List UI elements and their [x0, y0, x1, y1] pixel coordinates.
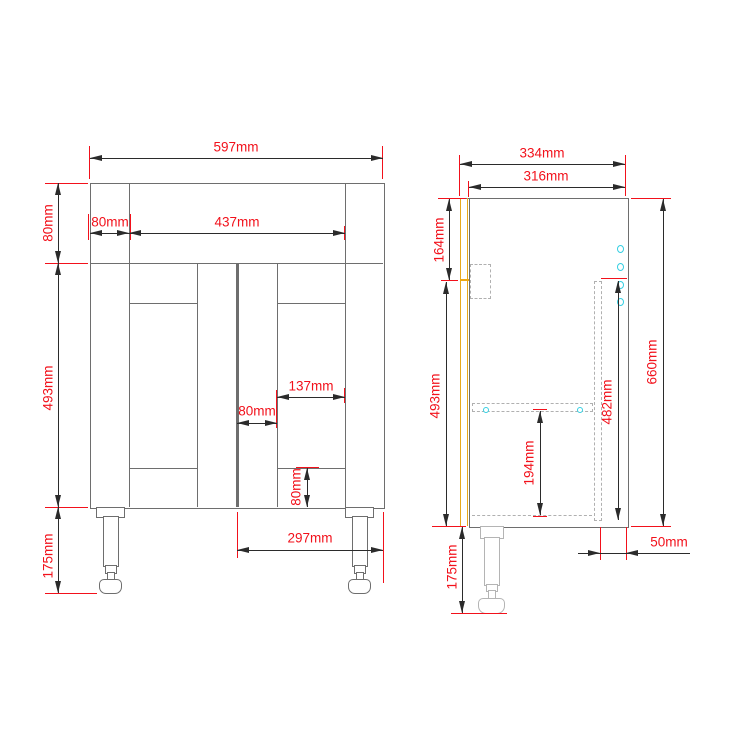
extension-line [533, 409, 547, 410]
front-door-gap-line [236, 263, 239, 507]
shelf-hidden [472, 403, 593, 412]
extension-line [533, 516, 547, 517]
dim-arrow [304, 495, 310, 507]
extension-line [89, 146, 90, 179]
shelf-peg-hole [617, 263, 624, 271]
dim-arrow [117, 230, 129, 236]
dim-arrow [613, 161, 625, 167]
dim-arrow [459, 601, 465, 613]
dim-arrow [588, 550, 600, 556]
extension-line [451, 613, 507, 614]
shelf-peg-hole [617, 245, 624, 253]
dim-arrow [129, 230, 141, 236]
dim-label-side-total-depth: 334mm [519, 146, 564, 160]
dimension-line [618, 281, 619, 520]
dim-label-side-back-offset: 50mm [650, 535, 688, 549]
dim-arrow [469, 184, 481, 190]
extension-line [600, 527, 601, 560]
front-panel-edge-line [277, 263, 278, 507]
dim-arrow [55, 507, 61, 519]
extension-line [45, 593, 97, 594]
leg-foot [348, 579, 371, 594]
dim-label-front-rail-span: 437mm [214, 215, 259, 229]
leg-foot [478, 598, 505, 614]
front-right-panel-bottom-line [277, 468, 345, 469]
dim-arrow [537, 411, 543, 423]
dim-label-side-shelf-height: 194mm [522, 440, 536, 485]
extension-line [601, 278, 627, 279]
shelf-peg [483, 407, 489, 413]
front-left-panel-top-line [129, 303, 197, 304]
dim-arrow [660, 199, 666, 211]
dim-label-side-leg-height: 175mm [445, 544, 459, 589]
dim-arrow [443, 514, 449, 526]
dim-label-front-panel-width: 137mm [288, 379, 333, 393]
dim-arrow [371, 547, 383, 553]
extension-line [438, 198, 466, 199]
extension-line [631, 526, 671, 527]
dimension-line [237, 550, 383, 551]
dim-arrow [237, 547, 249, 553]
shelf-peg [577, 407, 583, 413]
extension-line [130, 214, 131, 240]
dim-arrow [55, 495, 61, 507]
extension-line [625, 155, 626, 196]
dim-arrow [55, 251, 61, 263]
extension-line [383, 512, 384, 583]
dim-arrow [55, 183, 61, 195]
base-panel-hidden-line [472, 515, 592, 516]
dim-arrow [615, 281, 621, 293]
dim-arrow [90, 155, 102, 161]
dimension-line [460, 164, 625, 165]
dimension-line [446, 282, 447, 526]
side-carcass-outline [469, 198, 629, 528]
dim-label-side-back-panel: 482mm [600, 379, 614, 424]
dim-arrow [265, 420, 277, 426]
leg-shaft [484, 537, 500, 586]
dim-arrow [333, 394, 345, 400]
front-left-panel-bottom-line [129, 468, 197, 469]
dim-arrow [277, 394, 289, 400]
dim-label-front-center-stile: 80mm [238, 404, 276, 418]
leg-shaft [103, 516, 119, 567]
drawer-door-joint-line [460, 279, 469, 281]
extension-line [88, 214, 89, 240]
door-profile-front-line [460, 198, 462, 526]
dim-arrow [90, 230, 102, 236]
dim-arrow [446, 268, 452, 280]
dim-label-front-top-height: 80mm [41, 204, 55, 242]
dimension-line [540, 411, 541, 515]
dim-arrow [626, 550, 638, 556]
dim-arrow [55, 581, 61, 593]
front-panel-edge-line [197, 263, 198, 507]
dim-arrow [304, 468, 310, 480]
dim-label-front-left-stile: 80mm [91, 215, 129, 229]
dimension-line [58, 183, 59, 593]
dim-label-front-bottom-rail: 80mm [289, 468, 303, 506]
dim-arrow [55, 263, 61, 275]
dim-label-side-top-section: 164mm [432, 217, 446, 262]
dimension-line [469, 187, 625, 188]
dim-arrow [333, 230, 345, 236]
dim-arrow [371, 155, 383, 161]
dim-label-side-door-height: 493mm [428, 373, 442, 418]
dim-arrow [237, 420, 249, 426]
dim-label-side-total-height: 660mm [645, 339, 659, 384]
hinge-plate-hidden [470, 264, 491, 299]
front-right-panel-top-line [277, 303, 345, 304]
dim-label-front-total-width: 597mm [213, 140, 258, 154]
dim-label-side-carcass-depth: 316mm [523, 169, 568, 183]
dim-label-front-leg-height: 175mm [41, 533, 55, 578]
dim-arrow [446, 199, 452, 211]
extension-line [45, 507, 88, 508]
dim-arrow [660, 514, 666, 526]
extension-line [45, 263, 88, 264]
leg-shaft [352, 516, 368, 567]
dim-arrow [459, 527, 465, 539]
door-profile-back-line [467, 198, 469, 526]
leg-foot [99, 579, 122, 594]
dim-label-front-door-width: 297mm [287, 531, 332, 545]
dim-arrow [613, 184, 625, 190]
extension-line [45, 183, 88, 184]
extension-line [382, 146, 383, 179]
dim-arrow [537, 503, 543, 515]
dim-label-front-door-height: 493mm [41, 365, 55, 410]
dim-arrow [460, 161, 472, 167]
dim-arrow [615, 508, 621, 520]
technical-drawing-canvas: 597mm 80mm 493mm 175mm [0, 0, 750, 750]
dimension-line [663, 199, 664, 526]
extension-line [441, 280, 458, 281]
front-stile-line [345, 183, 346, 507]
dimension-line [90, 158, 383, 159]
dim-arrow [443, 282, 449, 294]
